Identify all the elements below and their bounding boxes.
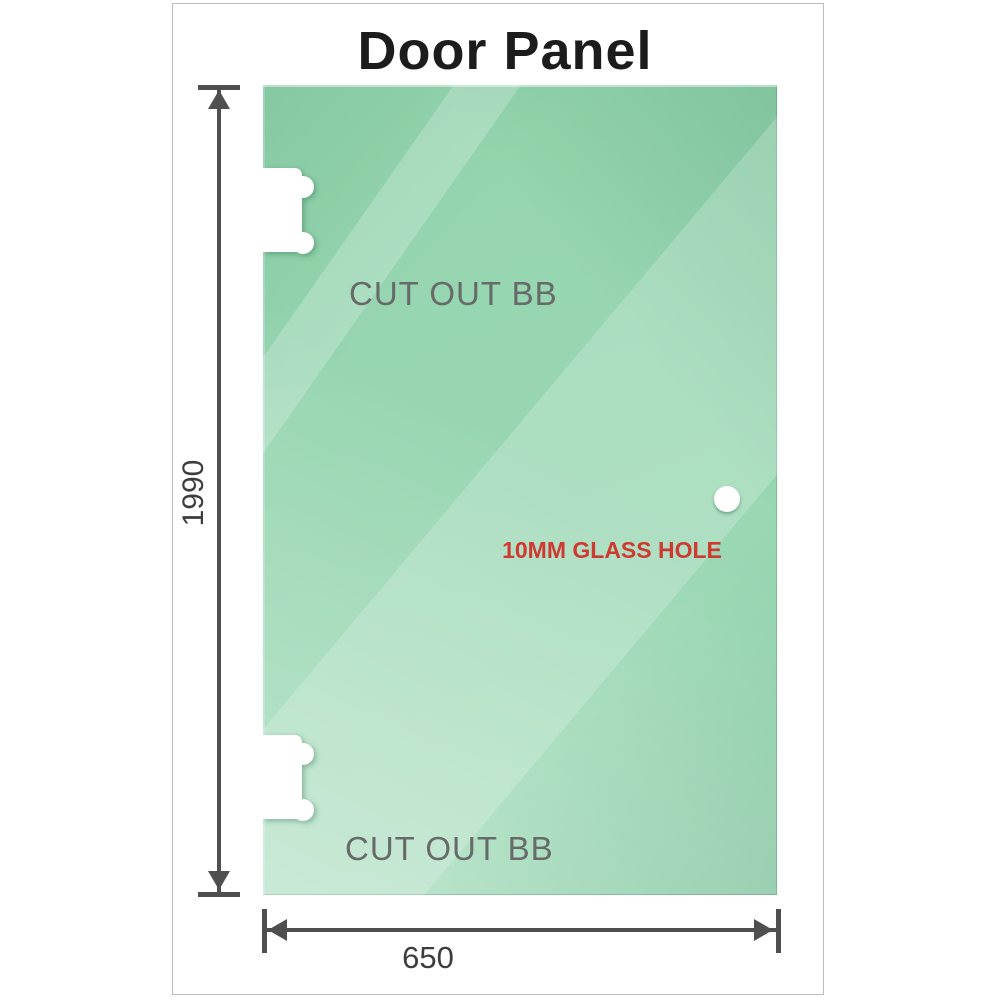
- cutout-lobe: [292, 232, 314, 254]
- glass-reflection-streak: [263, 85, 777, 895]
- glass-door-panel: CUT OUT BB CUT OUT BB 10MM GLASS HOLE: [263, 85, 777, 895]
- glass-hole: [714, 486, 740, 512]
- drawing-frame: Door Panel CUT OUT BB CUT OUT BB 10MM GL…: [172, 3, 824, 995]
- dimension-line-horizontal: [267, 928, 776, 932]
- arrowhead-down-icon: [208, 871, 230, 890]
- arrowhead-up-icon: [208, 90, 230, 109]
- diagram-title: Door Panel: [173, 20, 823, 82]
- drawing-canvas: Door Panel CUT OUT BB CUT OUT BB 10MM GL…: [0, 0, 1000, 1000]
- width-value: 650: [378, 940, 478, 976]
- height-value: 1990: [177, 448, 211, 538]
- cutout-label-bottom: CUT OUT BB: [345, 830, 554, 868]
- hinge-cutout-top: [263, 168, 315, 252]
- hinge-cutout-bottom: [263, 735, 315, 819]
- glass-reflection-streak: [263, 85, 591, 558]
- glass-hole-label: 10MM GLASS HOLE: [452, 537, 772, 564]
- arrowhead-left-icon: [268, 919, 287, 941]
- cutout-lobe: [292, 176, 314, 198]
- cutout-lobe: [292, 743, 314, 765]
- arrowhead-right-icon: [754, 919, 773, 941]
- cutout-label-top: CUT OUT BB: [349, 275, 558, 313]
- dimension-cap-right: [776, 909, 781, 953]
- dimension-line-vertical: [217, 89, 221, 893]
- cutout-lobe: [292, 799, 314, 821]
